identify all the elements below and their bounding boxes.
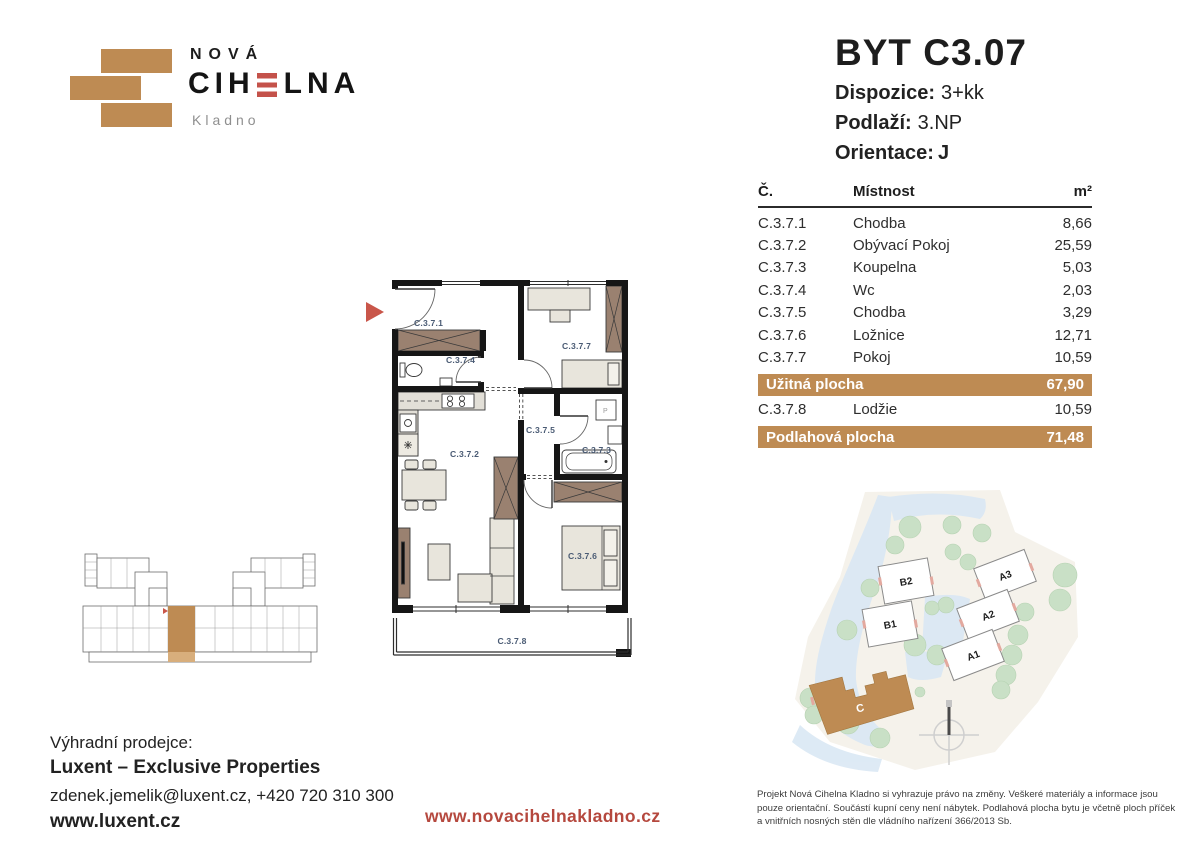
room-name: Obývací Pokoj xyxy=(853,237,1032,254)
spec-label: Podlaží: xyxy=(835,112,912,134)
seller-label: Výhradní prodejce: xyxy=(50,733,193,753)
room-id: C.3.7.5 xyxy=(758,304,853,321)
room-id: C.3.7.4 xyxy=(758,282,853,299)
room-label-wc: C.3.7.4 xyxy=(446,355,475,365)
usable-area-row: Užitná plocha67,90 xyxy=(758,374,1092,396)
summary-label: Podlahová plocha xyxy=(766,429,1046,446)
highlighted-unit-loggia xyxy=(168,652,195,662)
table-header: Č. Místnost m² xyxy=(758,183,1092,208)
logo-brand-pre: CIH xyxy=(188,67,255,101)
legal-disclaimer: Projekt Nová Cihelna Kladno si vyhrazuje… xyxy=(757,788,1181,829)
building-label: B2 xyxy=(899,576,914,589)
brick-icon xyxy=(70,76,141,100)
logo-brand-post: LNA xyxy=(284,67,361,101)
apartment-title: BYT C3.07 xyxy=(835,32,1027,74)
summary-value: 71,48 xyxy=(1046,429,1084,446)
highlighted-unit xyxy=(168,606,195,652)
building-floor-overview xyxy=(75,548,325,680)
summary-label: Užitná plocha xyxy=(766,376,1046,393)
table-row: C.3.7.3Koupelna5,03 xyxy=(758,257,1092,279)
spec-label: Dispozice: xyxy=(835,82,935,104)
room-label-corridor: C.3.7.5 xyxy=(526,425,555,435)
spec-podlazi: Podlaží:3.NP xyxy=(835,112,962,135)
room-id: C.3.7.1 xyxy=(758,215,853,232)
col-area: m² xyxy=(1032,183,1092,200)
building-outline xyxy=(83,554,317,662)
project-website-link[interactable]: www.novacihelnakladno.cz xyxy=(425,806,661,827)
table-row: C.3.7.2Obývací Pokoj25,59 xyxy=(758,234,1092,256)
logo-brand: CIHLNA xyxy=(188,67,360,101)
room-area: 25,59 xyxy=(1032,237,1092,254)
room-name: Chodba xyxy=(853,304,1032,321)
room-name: Ložnice xyxy=(853,327,1032,344)
spec-value: 3+kk xyxy=(941,82,984,104)
room-id: C.3.7.8 xyxy=(758,401,853,418)
room-area-table: Č. Místnost m² C.3.7.1Chodba8,66 C.3.7.2… xyxy=(758,183,1092,448)
table-row: C.3.7.6Ložnice12,71 xyxy=(758,324,1092,346)
room-name: Wc xyxy=(853,282,1032,299)
entrance-arrow-icon xyxy=(366,302,384,322)
room-id: C.3.7.7 xyxy=(758,349,853,366)
floorplan-drawing: P xyxy=(350,258,662,678)
table-row: C.3.7.5Chodba3,29 xyxy=(758,302,1092,324)
spec-orientace: Orientace:J xyxy=(835,142,949,165)
room-id: C.3.7.6 xyxy=(758,327,853,344)
washer-mark: P xyxy=(603,408,608,415)
site-map: B2 B1 A3 A2 A1 xyxy=(770,487,1090,782)
spec-dispozice: Dispozice:3+kk xyxy=(835,82,984,105)
table-row: C.3.7.1Chodba8,66 xyxy=(758,212,1092,234)
logo-e-bars-icon xyxy=(257,73,277,97)
room-area: 5,03 xyxy=(1032,259,1092,276)
brochure-page: NOVÁ CIHLNA Kladno BYT C3.07 Dispozice:3… xyxy=(0,0,1199,845)
room-label-hall: C.3.7.1 xyxy=(414,318,443,328)
brick-icon xyxy=(101,103,172,127)
room-name: Chodba xyxy=(853,215,1032,232)
room-area: 10,59 xyxy=(1032,401,1092,418)
room-area: 10,59 xyxy=(1032,349,1092,366)
room-name: Pokoj xyxy=(853,349,1032,366)
room-label-living: C.3.7.2 xyxy=(450,449,479,459)
room-id: C.3.7.3 xyxy=(758,259,853,276)
building-label: B1 xyxy=(883,619,898,632)
total-area-row: Podlahová plocha71,48 xyxy=(758,426,1092,448)
room-name: Koupelna xyxy=(853,259,1032,276)
room-label-room: C.3.7.7 xyxy=(562,341,591,351)
spec-value: J xyxy=(938,142,949,164)
col-number: Č. xyxy=(758,183,853,200)
seller-contact: zdenek.jemelik@luxent.cz, +420 720 310 3… xyxy=(50,786,394,806)
col-room: Místnost xyxy=(853,183,1032,200)
room-name: Lodžie xyxy=(853,401,1032,418)
seller-name: Luxent – Exclusive Properties xyxy=(50,757,320,779)
table-row: C.3.7.8Lodžie10,59 xyxy=(758,399,1092,421)
table-row: C.3.7.4Wc2,03 xyxy=(758,279,1092,301)
room-label-loggia: C.3.7.8 xyxy=(497,636,526,646)
spec-value: 3.NP xyxy=(918,112,962,134)
room-label-bedroom: C.3.7.6 xyxy=(568,551,597,561)
table-row: C.3.7.7Pokoj10,59 xyxy=(758,346,1092,368)
room-id: C.3.7.2 xyxy=(758,237,853,254)
summary-value: 67,90 xyxy=(1046,376,1084,393)
spec-label: Orientace: xyxy=(835,142,934,164)
seller-website-link[interactable]: www.luxent.cz xyxy=(50,811,180,833)
logo-city: Kladno xyxy=(192,112,260,128)
logo-line1: NOVÁ xyxy=(190,46,264,64)
room-area: 12,71 xyxy=(1032,327,1092,344)
room-label-bath: C.3.7.3 xyxy=(582,445,611,455)
brick-icon xyxy=(101,49,172,73)
room-area: 3,29 xyxy=(1032,304,1092,321)
room-area: 8,66 xyxy=(1032,215,1092,232)
room-area: 2,03 xyxy=(1032,282,1092,299)
